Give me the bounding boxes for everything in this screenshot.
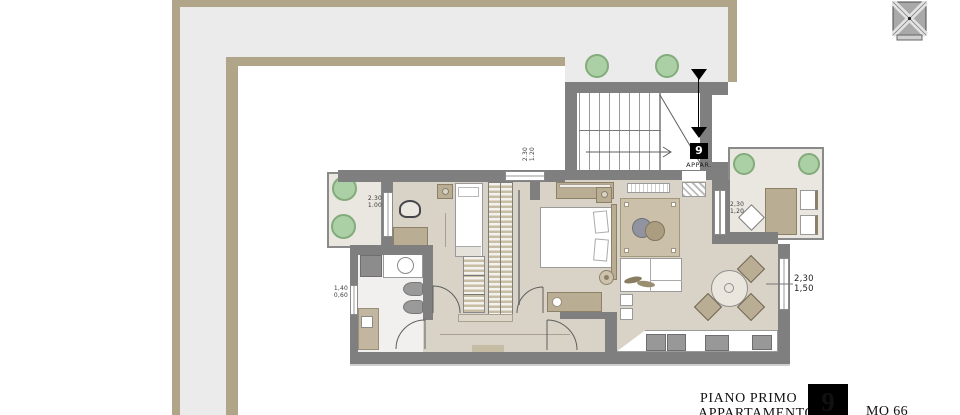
dim-dining-window: 2,30 1,50	[794, 275, 824, 295]
dim-line: 1.20	[530, 140, 537, 168]
door-bedroom	[517, 287, 543, 313]
dim-line: 1,50	[794, 285, 824, 295]
dim-bath-window: 1,40 0,60	[329, 286, 348, 300]
unit-number: 9	[821, 387, 835, 415]
unit-number-badge: 9	[808, 384, 848, 415]
dim-entry-window: 2.30 1.20	[523, 140, 537, 168]
title-floor: PIANO PRIMO	[700, 391, 797, 407]
stair-unit-number: 9	[695, 144, 703, 157]
dim-line: 1,20	[730, 209, 752, 216]
plan-lines-overlay	[0, 0, 960, 415]
stair-unit-badge: 9	[690, 143, 708, 159]
down-arrow-icon	[691, 127, 707, 138]
door-bath	[396, 320, 425, 349]
door-hall	[547, 320, 577, 350]
stair-caption: APPAR.	[680, 161, 718, 169]
floor-plan-canvas: 9 APPAR. 2.30 1.00 2.30 1.20 1,40 0,60 2…	[0, 0, 960, 415]
title-unit: APPARTAMENTO	[698, 406, 815, 415]
dim-line: 0,60	[329, 293, 348, 300]
roof-plan-icon	[892, 1, 928, 43]
stair-direction-line	[698, 78, 699, 130]
area-label: MQ 66	[866, 404, 908, 415]
dim-balcony-window: 2.30 1.00	[360, 196, 382, 210]
down-arrow-icon	[691, 69, 707, 80]
dim-terrace-window: 2,30 1,20	[730, 202, 752, 216]
door-room-left	[433, 286, 460, 313]
dim-line: 1.00	[360, 203, 382, 210]
